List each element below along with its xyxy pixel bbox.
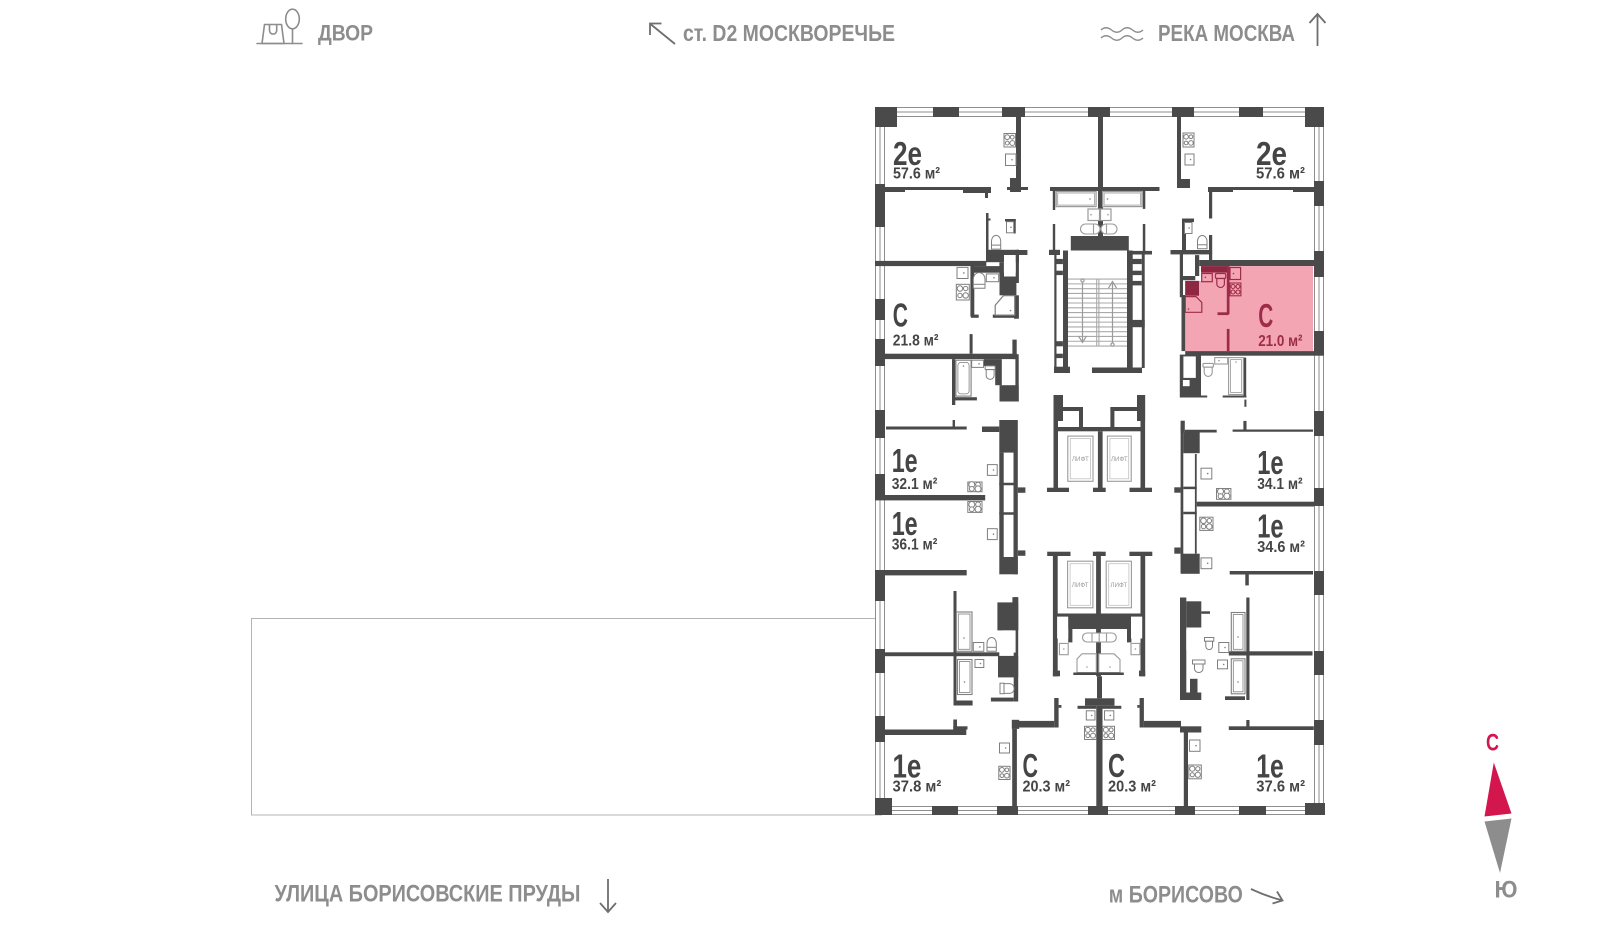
svg-text:20.3 м²: 20.3 м² — [1108, 779, 1156, 796]
svg-text:Ю: Ю — [1495, 877, 1518, 904]
svg-text:С: С — [1486, 730, 1499, 757]
svg-text:УЛИЦА БОРИСОВСКИЕ ПРУДЫ: УЛИЦА БОРИСОВСКИЕ ПРУДЫ — [275, 881, 581, 908]
svg-text:21.8 м²: 21.8 м² — [893, 333, 939, 350]
svg-text:20.3 м²: 20.3 м² — [1023, 779, 1071, 796]
svg-text:РЕКА МОСКВА: РЕКА МОСКВА — [1158, 20, 1295, 46]
svg-text:37.8 м²: 37.8 м² — [893, 779, 942, 796]
svg-text:м БОРИСОВО: м БОРИСОВО — [1109, 882, 1243, 909]
svg-text:21.0 м²: 21.0 м² — [1258, 333, 1302, 350]
svg-text:34.6 м²: 34.6 м² — [1257, 539, 1305, 556]
svg-text:ЛИФТ: ЛИФТ — [1072, 582, 1089, 589]
svg-text:34.1 м²: 34.1 м² — [1257, 476, 1302, 493]
svg-text:С: С — [1258, 297, 1273, 334]
svg-text:37.6 м²: 37.6 м² — [1256, 779, 1305, 796]
svg-text:ЛИФТ: ЛИФТ — [1111, 456, 1128, 463]
svg-text:32.1 м²: 32.1 м² — [892, 476, 938, 493]
svg-text:ст. D2 МОСКВОРЕЧЬЕ: ст. D2 МОСКВОРЕЧЬЕ — [683, 20, 895, 46]
svg-text:36.1 м²: 36.1 м² — [892, 537, 938, 554]
svg-text:57.6 м²: 57.6 м² — [1256, 166, 1305, 183]
svg-text:57.6 м²: 57.6 м² — [893, 166, 940, 183]
svg-text:ЛИФТ: ЛИФТ — [1072, 456, 1089, 463]
svg-text:С: С — [893, 297, 908, 334]
svg-text:ЛИФТ: ЛИФТ — [1110, 582, 1127, 589]
svg-text:1е: 1е — [892, 442, 918, 479]
svg-text:ДВОР: ДВОР — [318, 21, 373, 46]
